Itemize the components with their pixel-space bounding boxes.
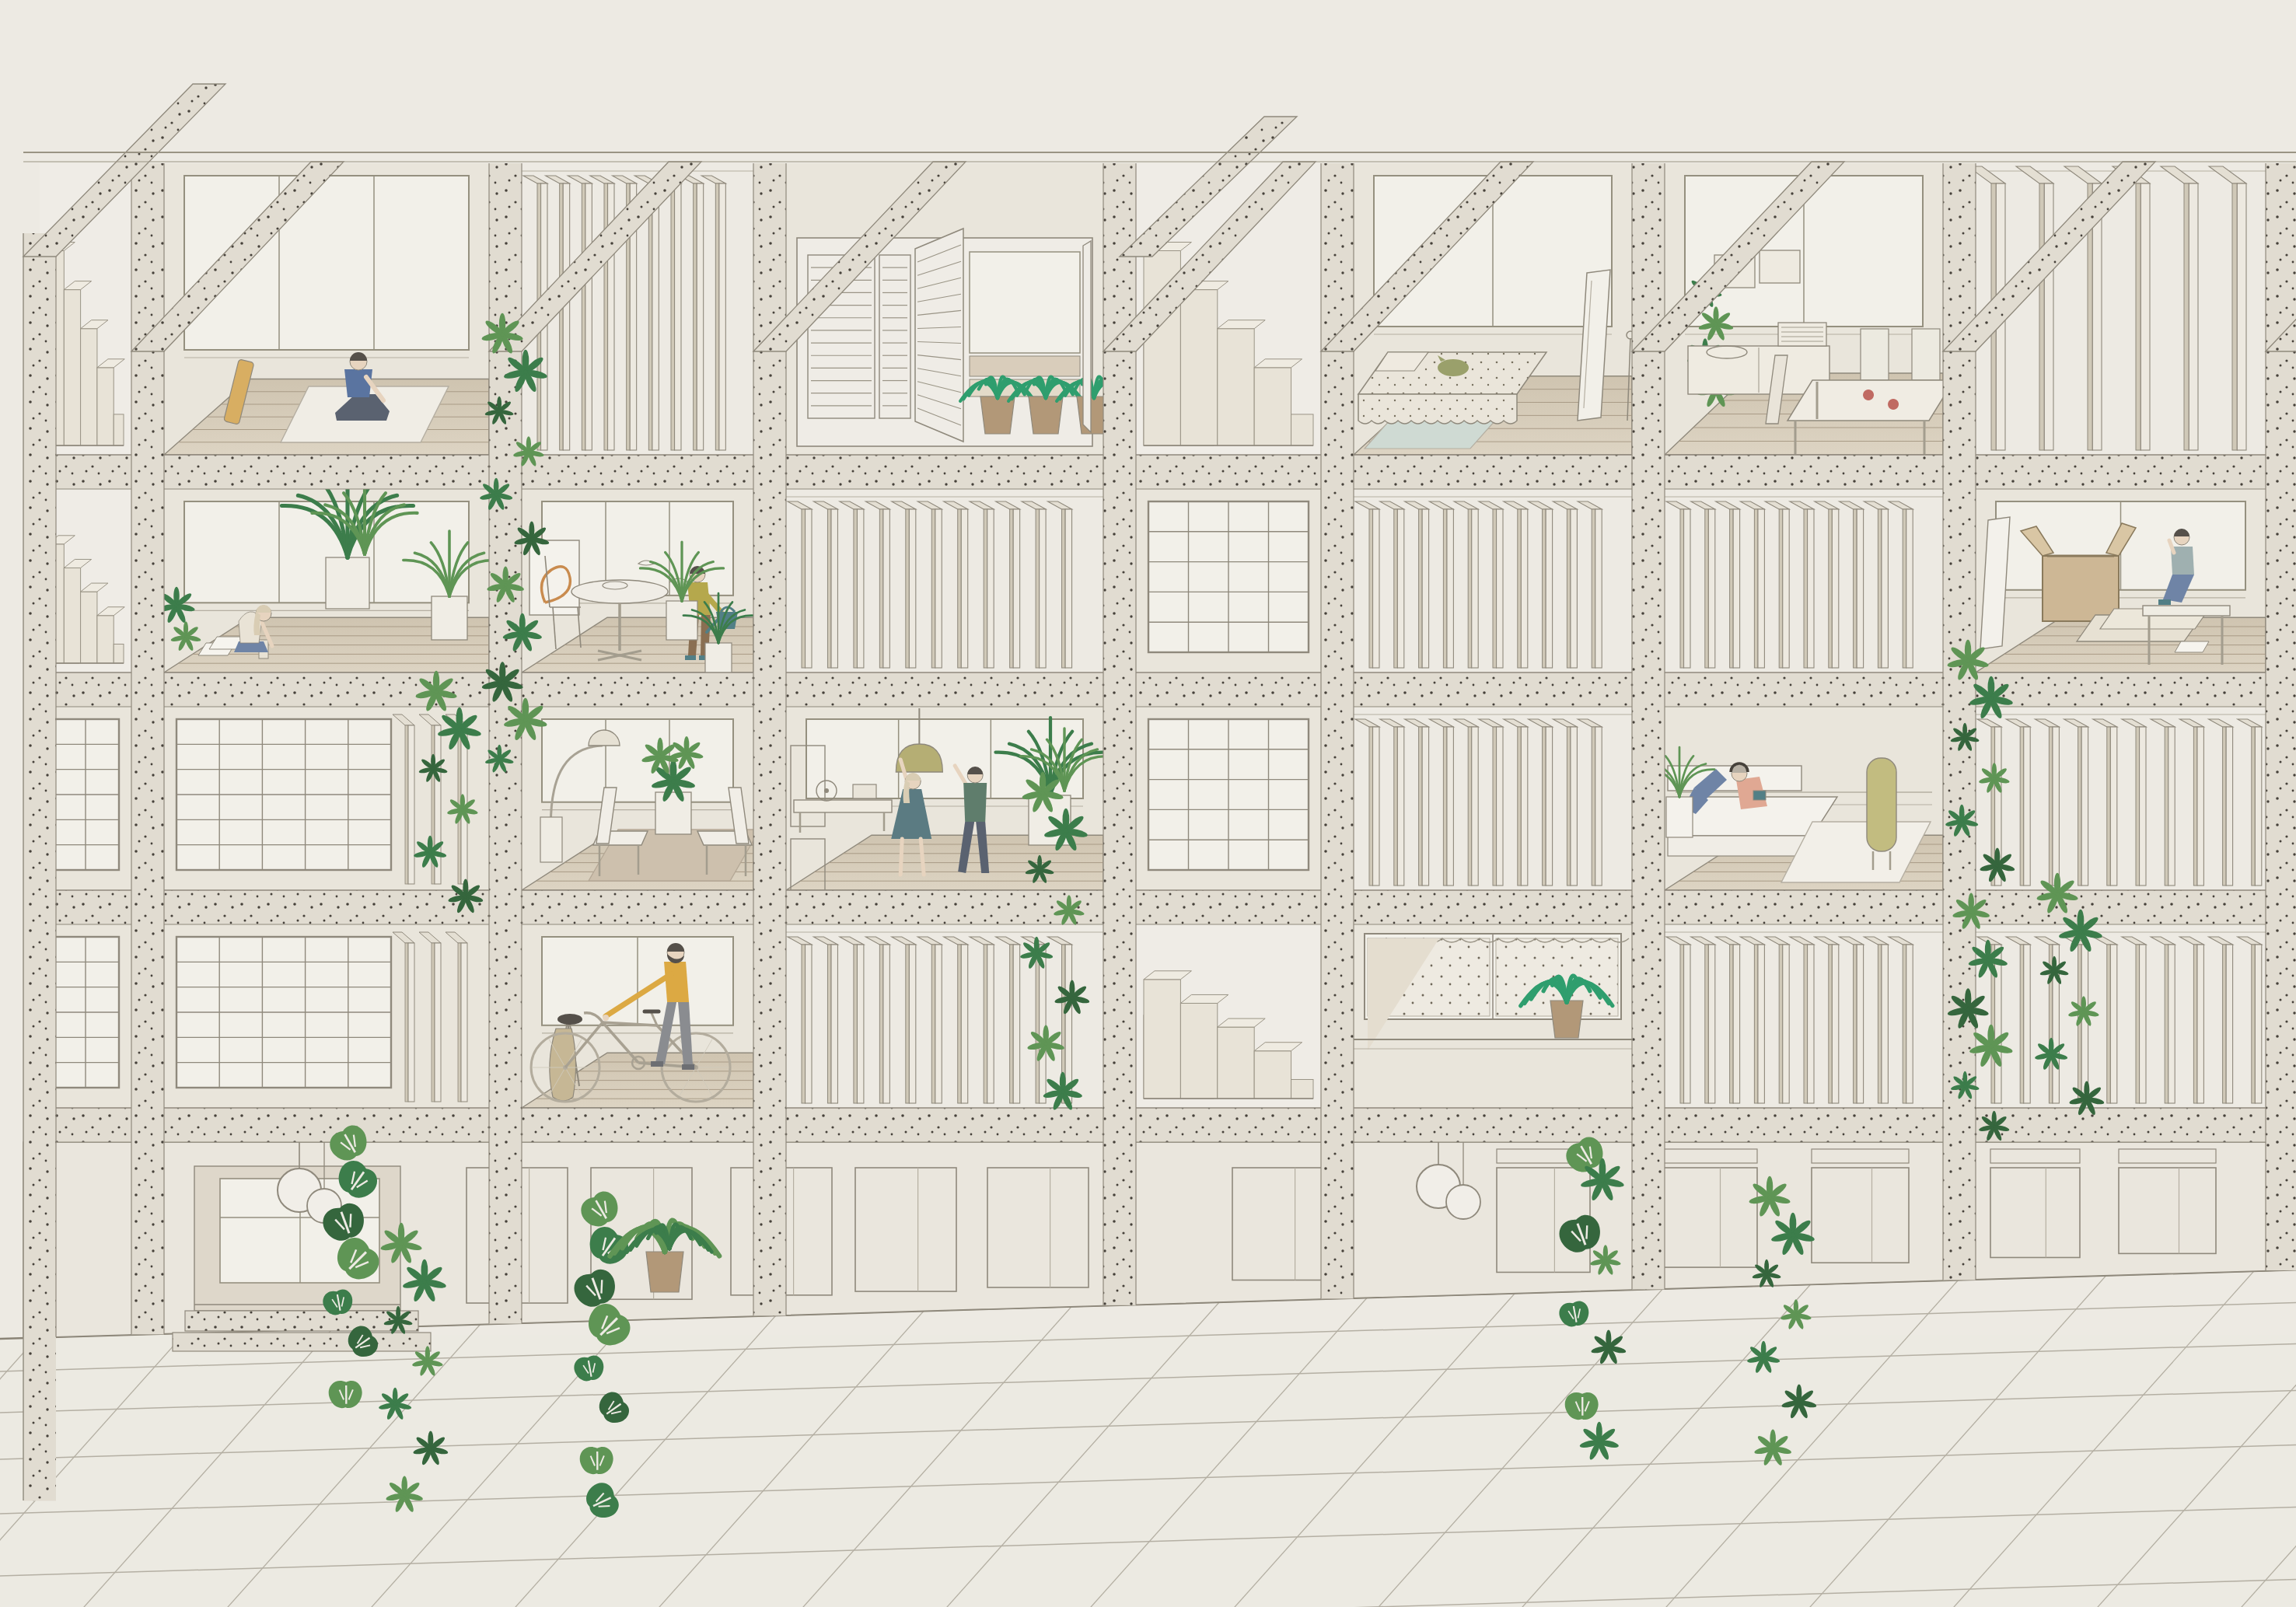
bay-room-reading-L3-7 bbox=[1644, 707, 1943, 890]
bay-louvers-L2-7 bbox=[1665, 924, 1943, 1108]
bay-room-plants-L4-2 bbox=[158, 464, 496, 672]
monstera-leaf bbox=[580, 1447, 613, 1474]
bay-room-sitting-L5-2 bbox=[164, 163, 489, 455]
bay-louvers-L2-8 bbox=[1976, 924, 2296, 1108]
bay-room-armchairs-L3-3 bbox=[522, 707, 760, 890]
bay-room-dancing-L3-4 bbox=[786, 707, 1108, 904]
bay-window-grid-L3-5 bbox=[1136, 707, 1321, 890]
bay-louvers-L4-7 bbox=[1665, 489, 1943, 672]
building-section-illustration: Watercolor architectural cross-section o… bbox=[0, 0, 2296, 1607]
illustration-stage: Watercolor architectural cross-section o… bbox=[0, 0, 2296, 1607]
bay-louvers-L3-8 bbox=[1976, 707, 2296, 890]
monstera-leaf bbox=[329, 1381, 362, 1408]
bay-bedroom-L5-6 bbox=[1354, 163, 1634, 455]
bay-louvers-L4-6 bbox=[1354, 489, 1632, 672]
bay-stairs-L2-5 bbox=[1136, 924, 1321, 1108]
bay-louvers-L2-4 bbox=[786, 924, 1103, 1108]
monstera-leaf bbox=[1565, 1392, 1599, 1420]
bay-window-shutters-L5-4 bbox=[786, 163, 1131, 455]
bay-louvers-L4-4 bbox=[786, 489, 1103, 672]
floor-level-4 bbox=[40, 464, 2266, 676]
bay-window-grid-L4-5 bbox=[1136, 489, 1321, 672]
bay-louvers-L3-6 bbox=[1354, 707, 1632, 890]
bay-louvers-L5-8 bbox=[1968, 163, 2296, 455]
bay-room-curtains-L2-6 bbox=[1354, 924, 1632, 1108]
bay-room-bicycle-L2-3 bbox=[522, 924, 753, 1108]
bay-window-grid-L2-2 bbox=[164, 924, 489, 1108]
bay-room-watering-L4-3 bbox=[522, 489, 753, 676]
bay-room-moving-L4-8 bbox=[1976, 489, 2266, 672]
bay-dining-L5-7 bbox=[1665, 163, 1954, 456]
